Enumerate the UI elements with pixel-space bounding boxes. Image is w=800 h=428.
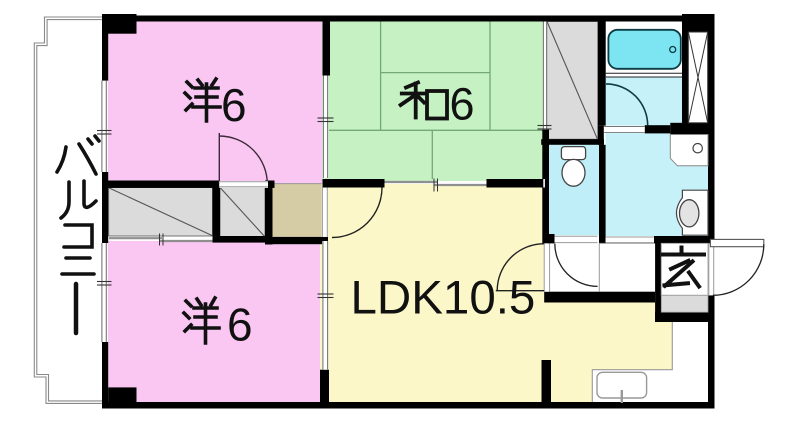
svg-text:LDK10.5: LDK10.5 xyxy=(351,272,536,325)
svg-text:6: 6 xyxy=(450,79,475,130)
svg-text:6: 6 xyxy=(227,299,253,351)
svg-text:6: 6 xyxy=(221,79,247,131)
